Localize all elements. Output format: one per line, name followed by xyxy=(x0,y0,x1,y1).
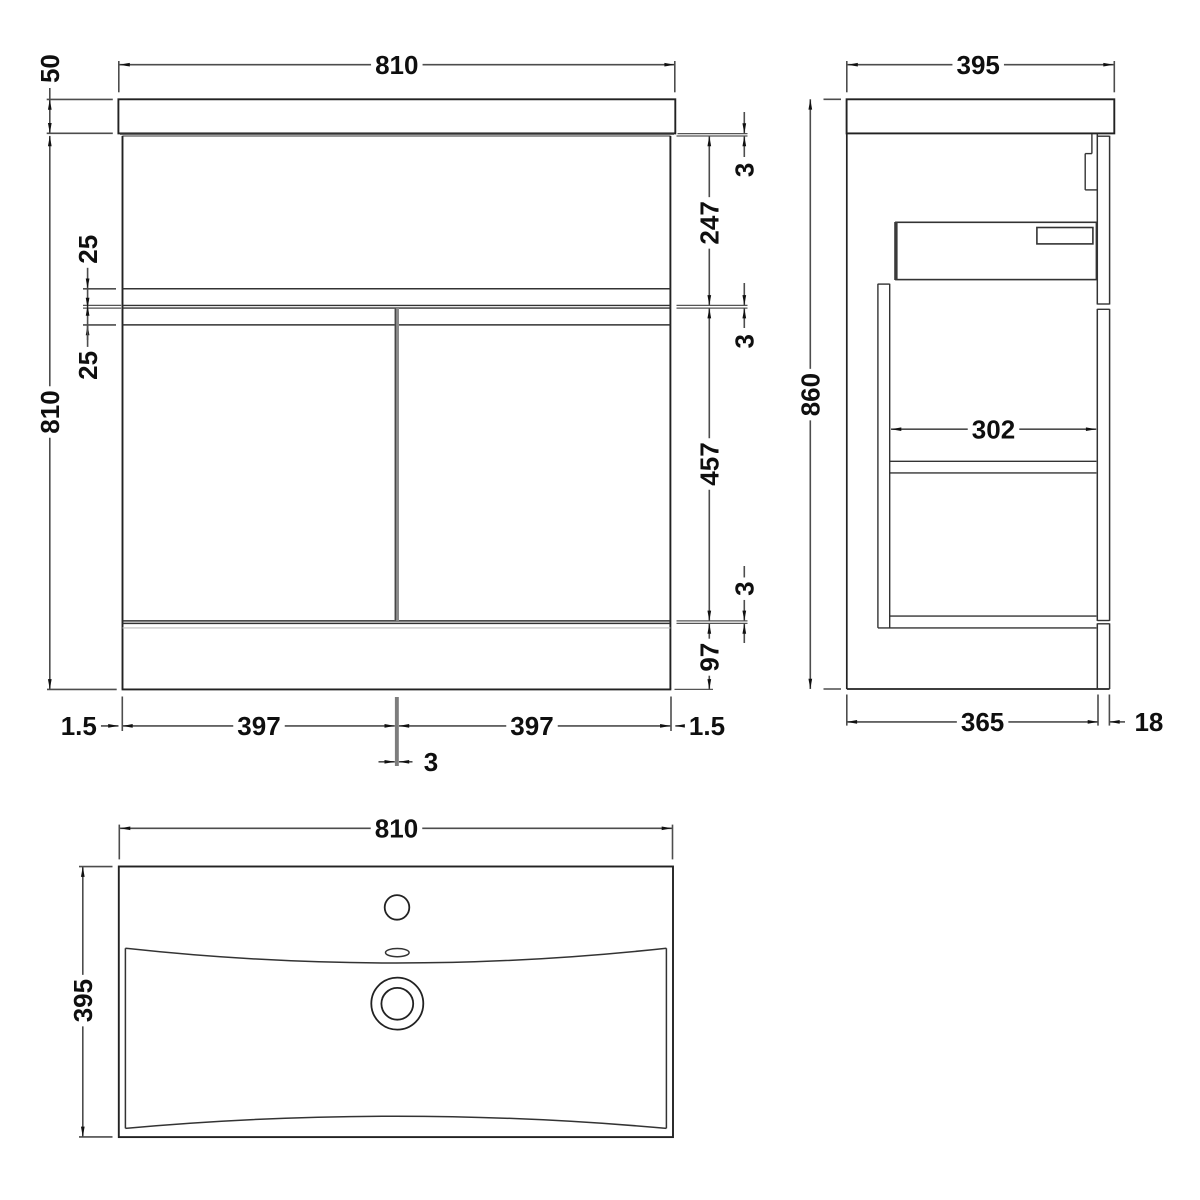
svg-text:247: 247 xyxy=(695,201,725,244)
svg-text:3: 3 xyxy=(729,163,759,177)
svg-text:50: 50 xyxy=(35,54,65,83)
svg-text:457: 457 xyxy=(695,442,725,485)
svg-text:97: 97 xyxy=(695,643,725,672)
svg-text:18: 18 xyxy=(1134,707,1163,737)
svg-text:25: 25 xyxy=(73,235,103,264)
svg-text:810: 810 xyxy=(375,814,418,844)
svg-text:860: 860 xyxy=(796,373,826,416)
svg-text:395: 395 xyxy=(68,979,98,1022)
svg-text:3: 3 xyxy=(424,747,438,777)
svg-text:365: 365 xyxy=(961,707,1004,737)
svg-text:397: 397 xyxy=(237,711,280,741)
svg-text:302: 302 xyxy=(972,415,1015,445)
svg-text:1.5: 1.5 xyxy=(61,711,97,741)
svg-text:25: 25 xyxy=(73,351,103,380)
svg-text:810: 810 xyxy=(375,50,418,80)
svg-text:3: 3 xyxy=(730,334,760,348)
svg-text:395: 395 xyxy=(957,50,1000,80)
svg-text:1.5: 1.5 xyxy=(689,711,725,741)
svg-text:810: 810 xyxy=(35,390,65,433)
svg-text:3: 3 xyxy=(730,581,760,595)
svg-text:397: 397 xyxy=(510,711,553,741)
